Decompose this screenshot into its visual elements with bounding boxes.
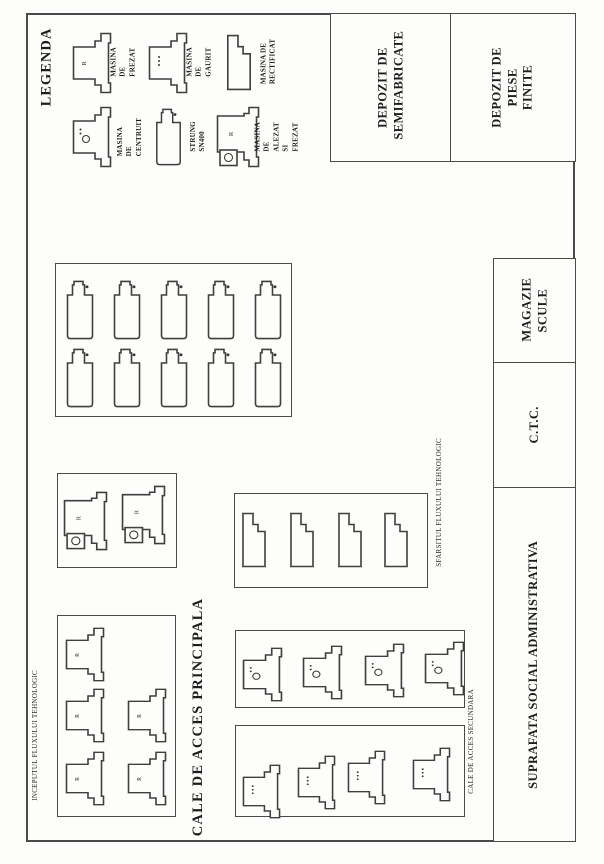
strung-bay-box: [55, 263, 292, 417]
machine-gaurit: [242, 764, 281, 819]
machine-centruit: [364, 643, 405, 698]
room-suprafata-social: SUPRAFATA SOCIAL ADMINISTRATIVA: [493, 487, 576, 842]
room-depozit-semifabricate: DEPOZIT DE SEMIFABRICATE: [330, 13, 451, 162]
legend-strung-label: STRUNG SN400: [187, 102, 209, 170]
machine-gaurit: [412, 747, 451, 802]
machine-strung: [254, 348, 282, 408]
machine-strung: [66, 348, 94, 408]
machine-strung: [207, 280, 235, 340]
legend-gaurit-label: MASINA DE GAURIT: [189, 28, 211, 96]
machine-frezat: [65, 627, 105, 682]
legend-strung-icon: [155, 108, 182, 166]
legend-gaurit-icon: [148, 32, 188, 94]
machine-strung: [66, 280, 94, 340]
machine-rectificat: [289, 512, 315, 568]
room-depozit-piese-finite: DEPOZIT DE PIESE FINITE: [450, 13, 576, 162]
machine-gaurit: [297, 755, 336, 810]
machine-strung: [113, 348, 141, 408]
machine-centruit: [424, 641, 465, 696]
machine-gaurit: [347, 750, 386, 805]
alezat-bay-box: [57, 473, 177, 568]
gaurit-bay-box: [235, 725, 465, 817]
machine-strung: [160, 348, 188, 408]
legend-rectificat-icon: [225, 34, 253, 91]
legend-rectificat-label: MASINA DE RECTIFICAT: [257, 24, 281, 98]
machine-frezat: [65, 688, 105, 743]
legend-centruit-label: MASINA DE CENTRUIT: [113, 102, 147, 172]
machine-strung: [160, 280, 188, 340]
rectificat-bay-box: [234, 493, 428, 588]
factory-layout-page: LEGENDA MASINA DE FREZAT MASINA DE GAURI…: [0, 0, 604, 864]
note-sfarsitul-fluxului: SFARSITUL FLUXULUI TEHNOLOGIC: [430, 412, 448, 592]
legend-title: LEGENDA: [32, 22, 60, 112]
legend-centruit-icon: [72, 106, 112, 168]
machine-rectificat: [337, 512, 363, 568]
centruit-bay-box: [235, 630, 465, 708]
machine-centruit: [242, 647, 283, 702]
legend-frezat-label: MASINA DE FREZAT: [113, 28, 135, 96]
machine-frezat: [127, 751, 167, 806]
machine-rectificat: [383, 512, 409, 568]
machine-frezat: [65, 751, 105, 806]
machine-alezat: [121, 485, 166, 545]
machine-strung: [113, 280, 141, 340]
legend-frezat-icon: [72, 32, 112, 94]
room-magazie-scule: MAGAZIE SCULE: [493, 258, 576, 363]
legend-alezat-label: MASINA DE ALEZAT SI FREZAT: [262, 98, 292, 176]
machine-strung: [207, 348, 235, 408]
frezat-bay-box: [57, 615, 176, 817]
machine-rectificat: [241, 512, 267, 568]
room-ctc: C.T.C.: [493, 362, 576, 488]
note-cale-acces-secundara: CALE DE ACCES SECUNDARA: [463, 662, 479, 820]
note-inceputul-fluxului: INCEPUTUL FLUXULUI TEHNOLOGIC: [26, 630, 44, 840]
machine-centruit: [302, 645, 343, 700]
machine-frezat: [127, 688, 167, 743]
machine-strung: [254, 280, 282, 340]
note-cale-acces-principala: CALE DE ACCES PRINCIPALA: [182, 597, 214, 837]
machine-alezat: [63, 491, 108, 551]
